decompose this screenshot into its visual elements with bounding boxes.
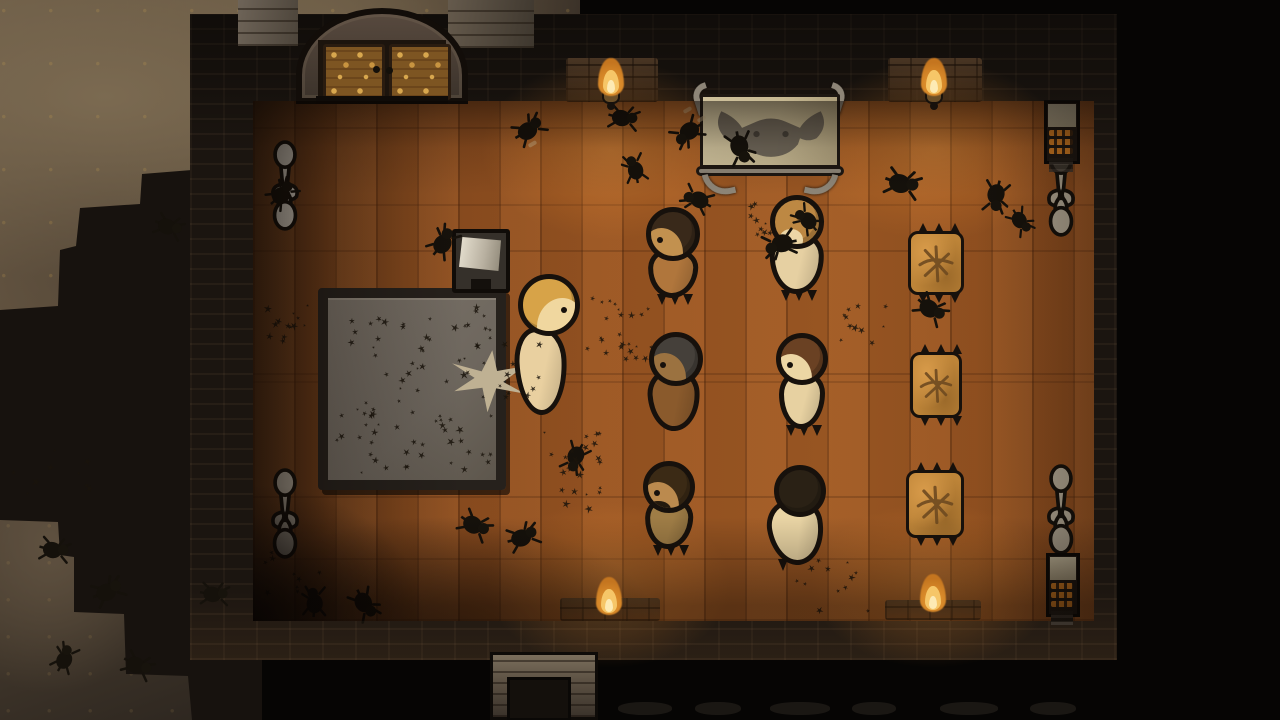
pawn-eye (660, 362, 666, 368)
bottom-rubble-mound (695, 702, 741, 715)
exterior-chimney-structure (490, 652, 598, 720)
bottom-rubble-mound (940, 702, 998, 715)
lectern-top-panel (459, 237, 501, 271)
pawn-head (643, 461, 695, 513)
beetle-insect[interactable] (299, 582, 330, 619)
wall-sculpture[interactable] (266, 468, 304, 560)
pawn-foot-claw (670, 294, 680, 305)
pawn-foot-claw (778, 559, 788, 571)
bedroll-tuft-top (920, 344, 930, 354)
pawn-foot-claw (683, 294, 693, 305)
bottom-rubble-mound (852, 702, 896, 715)
shelf-item-row (1051, 592, 1073, 598)
bedroll-tuft-bottom (936, 416, 946, 426)
pawn-face (537, 298, 580, 336)
bedroll-tuft-top (936, 344, 946, 354)
pawn-eye (654, 490, 660, 496)
door-threshold (316, 96, 448, 104)
bedroll-tuft-top (952, 344, 962, 354)
beetle-insect[interactable] (721, 129, 759, 172)
pawn-foot-claw (799, 425, 809, 436)
bedroll[interactable] (910, 352, 962, 418)
pawn-head (646, 207, 700, 261)
bedroll-tuft-bottom (952, 416, 962, 426)
door-knob-left (373, 66, 380, 73)
tapestry-cloth[interactable] (700, 94, 840, 168)
pawn-head (518, 274, 580, 336)
bottom-rubble-mound (770, 702, 830, 715)
pawn-eye (657, 237, 663, 243)
pawn-foot-claw (794, 290, 804, 301)
chimney-opening (507, 677, 571, 720)
pawn-head (776, 333, 828, 385)
bottom-rubble-mound (1030, 702, 1076, 715)
shelf-bottom-rows (1049, 158, 1073, 172)
shelf-item-row (1049, 139, 1073, 145)
bedroll-tuft-top (932, 462, 942, 472)
storage-shelf[interactable] (1044, 100, 1080, 164)
pawn-foot-claw (812, 425, 822, 436)
pawn-foot-claw (786, 425, 796, 436)
wall-sculpture[interactable] (1042, 464, 1080, 556)
storage-shelf[interactable] (1046, 553, 1080, 617)
bedroll-tuft-bottom (916, 536, 926, 546)
bedroll-tuft-bottom (920, 416, 930, 426)
torch-flame-core (929, 596, 937, 609)
bedroll[interactable] (906, 470, 964, 538)
shelf-item-row (1051, 583, 1073, 589)
bedroll-tuft-top (916, 462, 926, 472)
stone-slab[interactable] (318, 288, 506, 490)
stone-patch-right-of-door (448, 0, 534, 48)
stone-patch-left-of-door (238, 0, 298, 46)
pawn-foot-claw (666, 545, 676, 556)
game-viewport (0, 0, 1280, 720)
shelf-item-row (1049, 148, 1073, 154)
door-panel-right[interactable] (389, 44, 451, 100)
bedroll-tuft-bottom (950, 293, 960, 303)
bedroll-tuft-top (948, 462, 958, 472)
bedroll[interactable] (908, 231, 964, 295)
bedroll-tuft-bottom (948, 536, 958, 546)
pawn-foot-claw (653, 545, 663, 556)
door-knob-right (386, 67, 393, 74)
bottom-rubble-mound (618, 702, 672, 715)
torch-bracket-knob (607, 102, 615, 110)
beetle-insect[interactable] (198, 579, 235, 611)
pawn-head (649, 332, 703, 386)
torch-flame-core (930, 80, 938, 93)
torch-flame-core (607, 80, 615, 93)
torch-flame-core (605, 599, 613, 612)
beetle-insect[interactable] (619, 149, 651, 186)
shelf-bottom-rows (1051, 611, 1073, 625)
shelf-item-row (1049, 130, 1073, 136)
bedroll-tuft-bottom (932, 536, 942, 546)
pawn-head (774, 465, 826, 517)
pawn-foot-claw (679, 545, 689, 556)
pawn-eye (787, 362, 793, 368)
shelf-top-panel (1050, 557, 1076, 580)
lectern-base (471, 279, 491, 289)
shelf-top-panel (1048, 104, 1076, 127)
bedroll-tuft-top (918, 223, 928, 233)
shelf-item-row (1051, 601, 1073, 607)
pawn-foot-claw (657, 294, 667, 305)
bedroll-tuft-top (950, 223, 960, 233)
bedroll-tuft-top (934, 223, 944, 233)
torch-bracket-knob (930, 102, 938, 110)
pawn-foot-claw (807, 290, 817, 301)
pawn-foot-claw (781, 290, 791, 301)
